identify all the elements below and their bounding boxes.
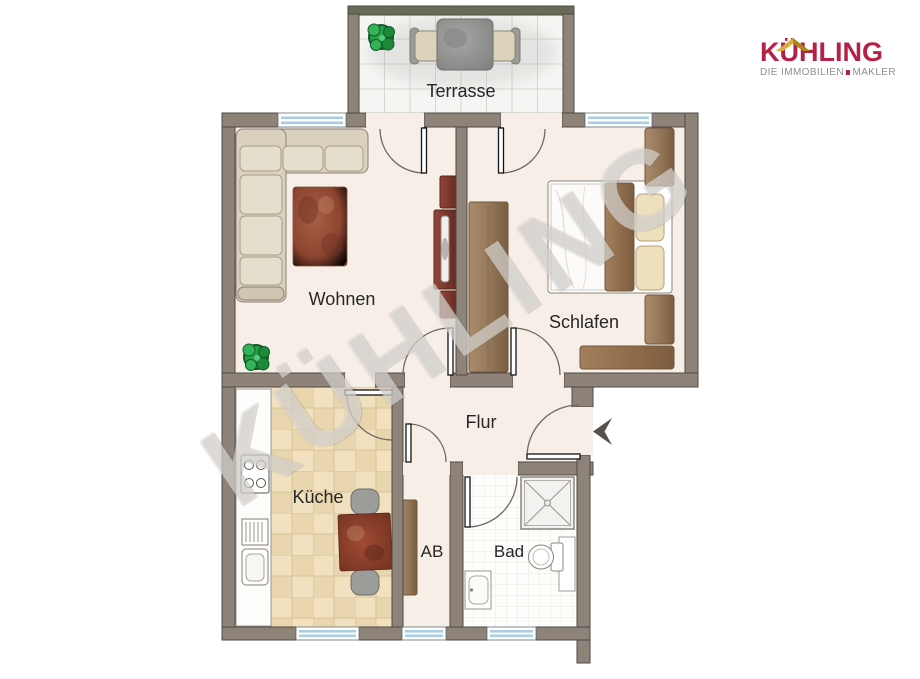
label-schlafen: Schlafen xyxy=(549,312,619,332)
window xyxy=(487,627,536,640)
window xyxy=(402,627,446,640)
terrace-wall-top xyxy=(348,6,574,15)
logo-tagline: DIE IMMOBILIEN MAKLER xyxy=(760,67,896,78)
label-ab: AB xyxy=(421,542,444,561)
label-kueche: Küche xyxy=(292,487,343,507)
door-bath xyxy=(465,477,470,527)
logo-tagline-right: MAKLER xyxy=(852,67,896,78)
plant-icon xyxy=(368,24,395,51)
door-kitchen xyxy=(345,390,392,395)
wall-bottom xyxy=(446,627,487,640)
label-wohnen: Wohnen xyxy=(309,289,376,309)
wall-living-bottom xyxy=(222,373,345,387)
door-terrace-living xyxy=(422,128,427,173)
wall-bedroom-bottom xyxy=(564,373,698,387)
brand-logo: KÜHLING DIE IMMOBILIEN MAKLER xyxy=(760,38,896,78)
washbasin xyxy=(465,571,491,609)
floor-plan-page: Terrasse Wohnen Schlafen Flur Küche AB B… xyxy=(0,0,920,679)
pillow xyxy=(636,194,664,241)
door-storage xyxy=(406,424,411,462)
door-bedroom xyxy=(511,328,516,375)
bedroom-cabinet-top xyxy=(645,128,674,186)
wall-right xyxy=(685,113,698,387)
bedroom-cabinet-bottom xyxy=(645,295,674,344)
stove xyxy=(241,455,269,493)
rug xyxy=(293,187,347,266)
label-terrasse: Terrasse xyxy=(426,81,495,101)
terrace-wall-right xyxy=(563,14,574,114)
entry-arrow-icon xyxy=(593,418,612,445)
kitchen-chair-top xyxy=(351,489,379,514)
label-bad: Bad xyxy=(494,542,524,561)
bed-runner xyxy=(605,183,634,291)
shower xyxy=(521,477,574,529)
wall-middle xyxy=(456,127,467,375)
window xyxy=(585,113,652,127)
label-flur: Flur xyxy=(466,412,497,432)
wall-ab-bath xyxy=(450,462,463,628)
floor-plan: Terrasse Wohnen Schlafen Flur Küche AB B… xyxy=(0,0,920,679)
door-terrace-bedroom xyxy=(499,128,504,173)
wall-living-bottom xyxy=(375,373,405,387)
plant-icon xyxy=(243,344,270,371)
terrace-table xyxy=(437,19,493,70)
wall-top xyxy=(222,113,278,127)
door-entrance xyxy=(527,454,580,459)
kitchen-table xyxy=(338,513,392,571)
wall-bottom xyxy=(359,627,402,640)
wall-kitchen-right xyxy=(392,387,403,627)
wall-bottom xyxy=(222,627,296,640)
door-living xyxy=(448,328,453,375)
logo-roof-icon xyxy=(776,38,810,51)
wardrobe xyxy=(469,202,508,372)
kitchen-chair-bottom xyxy=(351,570,379,595)
wall-top-stub xyxy=(424,113,501,127)
bedroom-sideboard xyxy=(580,346,674,369)
window xyxy=(278,113,346,127)
kitchen-counter xyxy=(236,389,271,626)
terrace-table-shade xyxy=(443,28,467,48)
terrace-wall-left xyxy=(348,14,359,114)
wall-entry-jamb xyxy=(572,387,593,407)
window xyxy=(296,627,359,640)
wall-top xyxy=(346,113,366,127)
bed xyxy=(548,181,672,293)
pillow xyxy=(636,246,664,290)
wall-bottom xyxy=(536,627,590,640)
logo-square-icon xyxy=(846,70,851,75)
wall-top xyxy=(562,113,585,127)
logo-tagline-left: DIE IMMOBILIEN xyxy=(760,67,844,78)
